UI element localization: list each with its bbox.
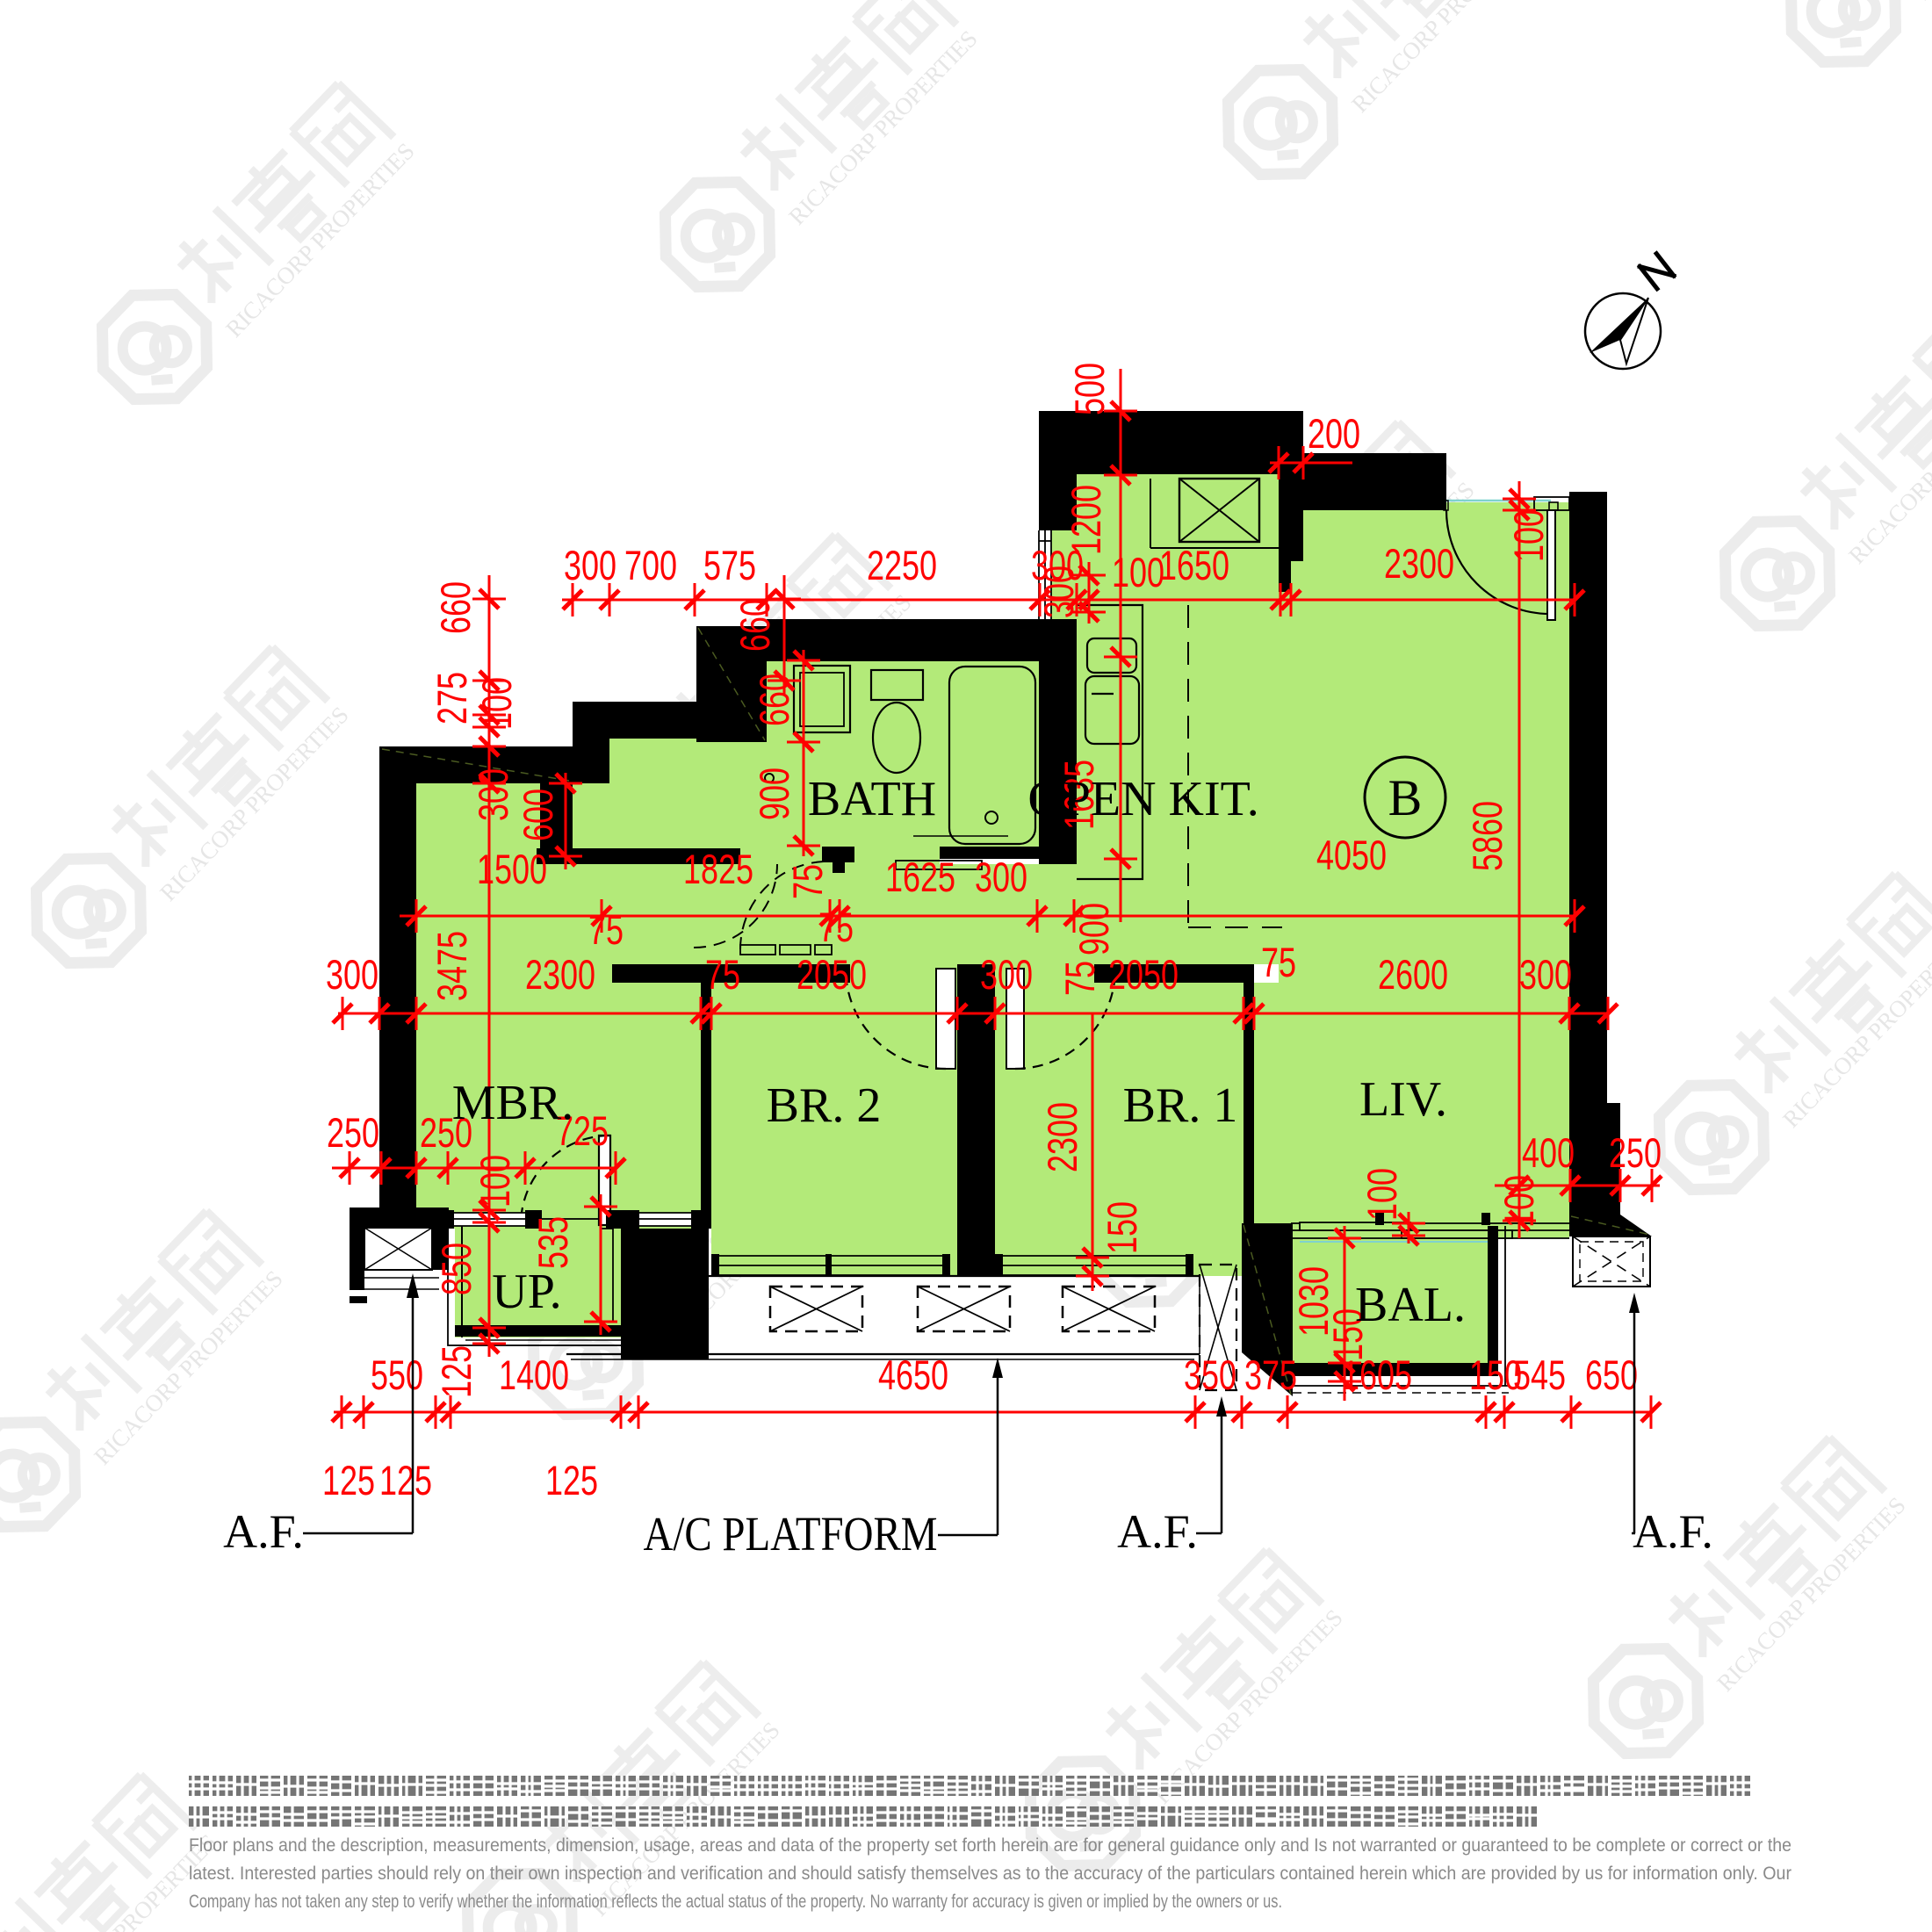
svg-text:5860: 5860 (1464, 801, 1510, 871)
svg-text:700: 700 (624, 542, 677, 588)
svg-text:600: 600 (515, 789, 561, 841)
svg-text:A.F.: A.F. (1117, 1505, 1198, 1558)
svg-text:75: 75 (818, 904, 854, 950)
svg-text:Floor plans and the descriptio: Floor plans and the description, measure… (189, 1835, 1791, 1856)
svg-text:2250: 2250 (867, 542, 937, 588)
svg-text:200: 200 (1308, 410, 1360, 457)
svg-text:545: 545 (1513, 1352, 1566, 1398)
svg-text:A.F.: A.F. (1633, 1505, 1713, 1558)
svg-text:BR. 1: BR. 1 (1123, 1078, 1238, 1133)
svg-text:1625: 1625 (885, 854, 955, 900)
svg-text:BR. 2: BR. 2 (767, 1078, 882, 1133)
svg-text:3475: 3475 (429, 931, 475, 1001)
svg-text:MBR.: MBR. (452, 1076, 574, 1130)
svg-text:OPEN KIT.: OPEN KIT. (1027, 772, 1258, 826)
svg-text:75: 75 (588, 906, 624, 953)
svg-text:LIV.: LIV. (1359, 1072, 1447, 1127)
svg-text:1400: 1400 (499, 1352, 569, 1398)
svg-text:latest. Interested parties sho: latest. Interested parties should rely o… (189, 1863, 1791, 1884)
svg-text:250: 250 (327, 1109, 379, 1156)
svg-text:300: 300 (1519, 951, 1572, 998)
svg-text:660: 660 (732, 599, 778, 652)
svg-text:575: 575 (703, 542, 756, 588)
svg-text:375: 375 (1244, 1352, 1297, 1398)
svg-text:1500: 1500 (477, 846, 547, 892)
svg-text:BAL.: BAL. (1355, 1278, 1466, 1332)
svg-text:4650: 4650 (878, 1352, 948, 1398)
svg-text:535: 535 (530, 1216, 576, 1269)
svg-text:100: 100 (1359, 1168, 1405, 1221)
svg-text:B: B (1388, 769, 1423, 826)
svg-text:2300: 2300 (525, 951, 595, 998)
svg-text:300: 300 (980, 951, 1033, 998)
svg-text:550: 550 (371, 1352, 423, 1398)
svg-text:100: 100 (473, 677, 520, 730)
svg-text:A.F.: A.F. (223, 1505, 304, 1558)
svg-text:125: 125 (433, 1345, 479, 1398)
svg-text:150: 150 (1099, 1201, 1145, 1254)
svg-text:75: 75 (705, 951, 740, 998)
svg-text:A/C PLATFORM: A/C PLATFORM (644, 1507, 938, 1561)
svg-text:100: 100 (1505, 509, 1552, 562)
svg-text:2050: 2050 (1108, 951, 1179, 998)
svg-text:660: 660 (432, 581, 479, 634)
svg-text:4050: 4050 (1316, 832, 1387, 878)
svg-text:900: 900 (1071, 903, 1117, 955)
svg-text:2600: 2600 (1378, 951, 1448, 998)
svg-text:650: 650 (1585, 1352, 1638, 1398)
svg-text:2300: 2300 (1384, 540, 1454, 587)
svg-text:900: 900 (751, 768, 797, 820)
svg-text:125: 125 (545, 1457, 598, 1503)
svg-text:75: 75 (784, 864, 831, 899)
svg-text:500: 500 (1066, 363, 1113, 415)
svg-text:1650: 1650 (1159, 542, 1229, 588)
svg-text:2300: 2300 (1039, 1102, 1085, 1172)
svg-text:300: 300 (470, 768, 516, 821)
svg-text:UP.: UP. (492, 1265, 561, 1319)
svg-text:75: 75 (1261, 939, 1296, 985)
svg-text:100: 100 (472, 1155, 518, 1207)
svg-text:300: 300 (564, 542, 616, 588)
svg-text:BATH: BATH (808, 772, 936, 826)
svg-text:850: 850 (433, 1243, 479, 1295)
svg-text:2050: 2050 (797, 951, 867, 998)
svg-text:300: 300 (1035, 566, 1082, 618)
svg-text:1825: 1825 (683, 846, 753, 892)
svg-text:250: 250 (1609, 1129, 1662, 1176)
svg-text:Company has not taken any step: Company has not taken any step to verify… (189, 1891, 1282, 1912)
svg-text:350: 350 (1184, 1352, 1236, 1398)
svg-text:300: 300 (975, 854, 1027, 900)
svg-text:1200: 1200 (1063, 485, 1109, 555)
svg-text:400: 400 (1522, 1129, 1575, 1176)
svg-text:125: 125 (379, 1457, 432, 1503)
svg-text:75: 75 (1056, 961, 1103, 996)
svg-text:660: 660 (751, 674, 797, 726)
svg-text:125: 125 (322, 1457, 375, 1503)
svg-text:300: 300 (326, 951, 378, 998)
svg-text:275: 275 (429, 672, 475, 724)
